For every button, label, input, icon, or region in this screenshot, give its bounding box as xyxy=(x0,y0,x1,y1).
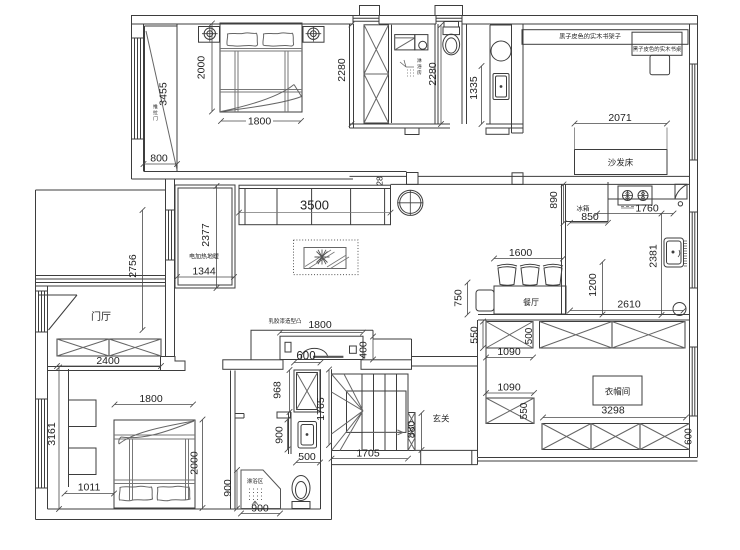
svg-text:28: 28 xyxy=(375,176,385,186)
svg-text:2000: 2000 xyxy=(196,56,208,80)
svg-text:电加热地暖: 电加热地暖 xyxy=(189,253,219,261)
svg-text:2071: 2071 xyxy=(608,112,632,124)
svg-text:2280: 2280 xyxy=(427,62,439,86)
svg-text:800: 800 xyxy=(150,153,168,165)
svg-text:1765: 1765 xyxy=(315,397,327,421)
svg-text:2610: 2610 xyxy=(617,299,641,311)
svg-text:3298: 3298 xyxy=(601,405,625,417)
svg-text:衣帽间: 衣帽间 xyxy=(605,387,631,397)
svg-text:门: 门 xyxy=(153,115,158,122)
svg-text:2377: 2377 xyxy=(200,223,212,247)
svg-text:3455: 3455 xyxy=(158,82,170,106)
svg-text:600: 600 xyxy=(684,428,695,445)
svg-text:2400: 2400 xyxy=(96,355,120,367)
svg-text:拉: 拉 xyxy=(153,109,158,116)
svg-text:1800: 1800 xyxy=(248,115,272,127)
svg-text:1800: 1800 xyxy=(308,319,332,331)
svg-text:750: 750 xyxy=(453,289,465,307)
svg-text:1800: 1800 xyxy=(139,393,163,405)
svg-text:门厅: 门厅 xyxy=(91,310,111,323)
svg-text:1090: 1090 xyxy=(497,346,521,358)
svg-text:玄关: 玄关 xyxy=(432,414,450,424)
svg-text:890: 890 xyxy=(548,191,560,209)
svg-text:淋: 淋 xyxy=(417,57,422,64)
svg-text:浴: 浴 xyxy=(417,63,422,70)
svg-text:1600: 1600 xyxy=(509,247,533,259)
svg-text:500: 500 xyxy=(298,451,316,463)
svg-text:推: 推 xyxy=(153,103,158,110)
svg-text:淋浴区: 淋浴区 xyxy=(247,477,264,485)
svg-text:2000: 2000 xyxy=(189,451,201,475)
svg-text:550: 550 xyxy=(469,326,481,344)
svg-text:1344: 1344 xyxy=(192,266,216,278)
svg-text:3500: 3500 xyxy=(300,198,329,213)
svg-text:沙发床: 沙发床 xyxy=(608,158,634,168)
svg-text:900: 900 xyxy=(222,479,234,497)
svg-text:3161: 3161 xyxy=(46,422,58,446)
svg-text:900: 900 xyxy=(251,503,269,515)
svg-text:黑子皮色的实木书架子: 黑子皮色的实木书架子 xyxy=(559,33,621,41)
svg-text:850: 850 xyxy=(581,211,599,223)
svg-text:黑子皮色的实木书桌: 黑子皮色的实木书桌 xyxy=(633,45,682,53)
svg-text:400: 400 xyxy=(358,341,370,359)
svg-text:968: 968 xyxy=(272,381,284,399)
svg-text:1760: 1760 xyxy=(635,203,659,215)
svg-text:550: 550 xyxy=(519,402,530,419)
svg-text:1200: 1200 xyxy=(587,273,599,297)
svg-text:1335: 1335 xyxy=(468,76,480,100)
svg-text:餐厅: 餐厅 xyxy=(523,298,539,307)
svg-text:600: 600 xyxy=(296,351,315,363)
svg-text:880: 880 xyxy=(406,421,418,439)
svg-text:1011: 1011 xyxy=(78,482,101,494)
svg-text:乳胶漆造型凸: 乳胶漆造型凸 xyxy=(268,317,301,325)
svg-text:2280: 2280 xyxy=(336,58,348,82)
svg-text:2381: 2381 xyxy=(648,244,660,268)
svg-text:2756: 2756 xyxy=(127,254,139,278)
svg-text:1705: 1705 xyxy=(356,447,380,459)
svg-text:1090: 1090 xyxy=(497,382,521,394)
svg-text:房: 房 xyxy=(417,69,422,76)
svg-text:500: 500 xyxy=(524,327,535,344)
svg-text:900: 900 xyxy=(274,426,286,444)
